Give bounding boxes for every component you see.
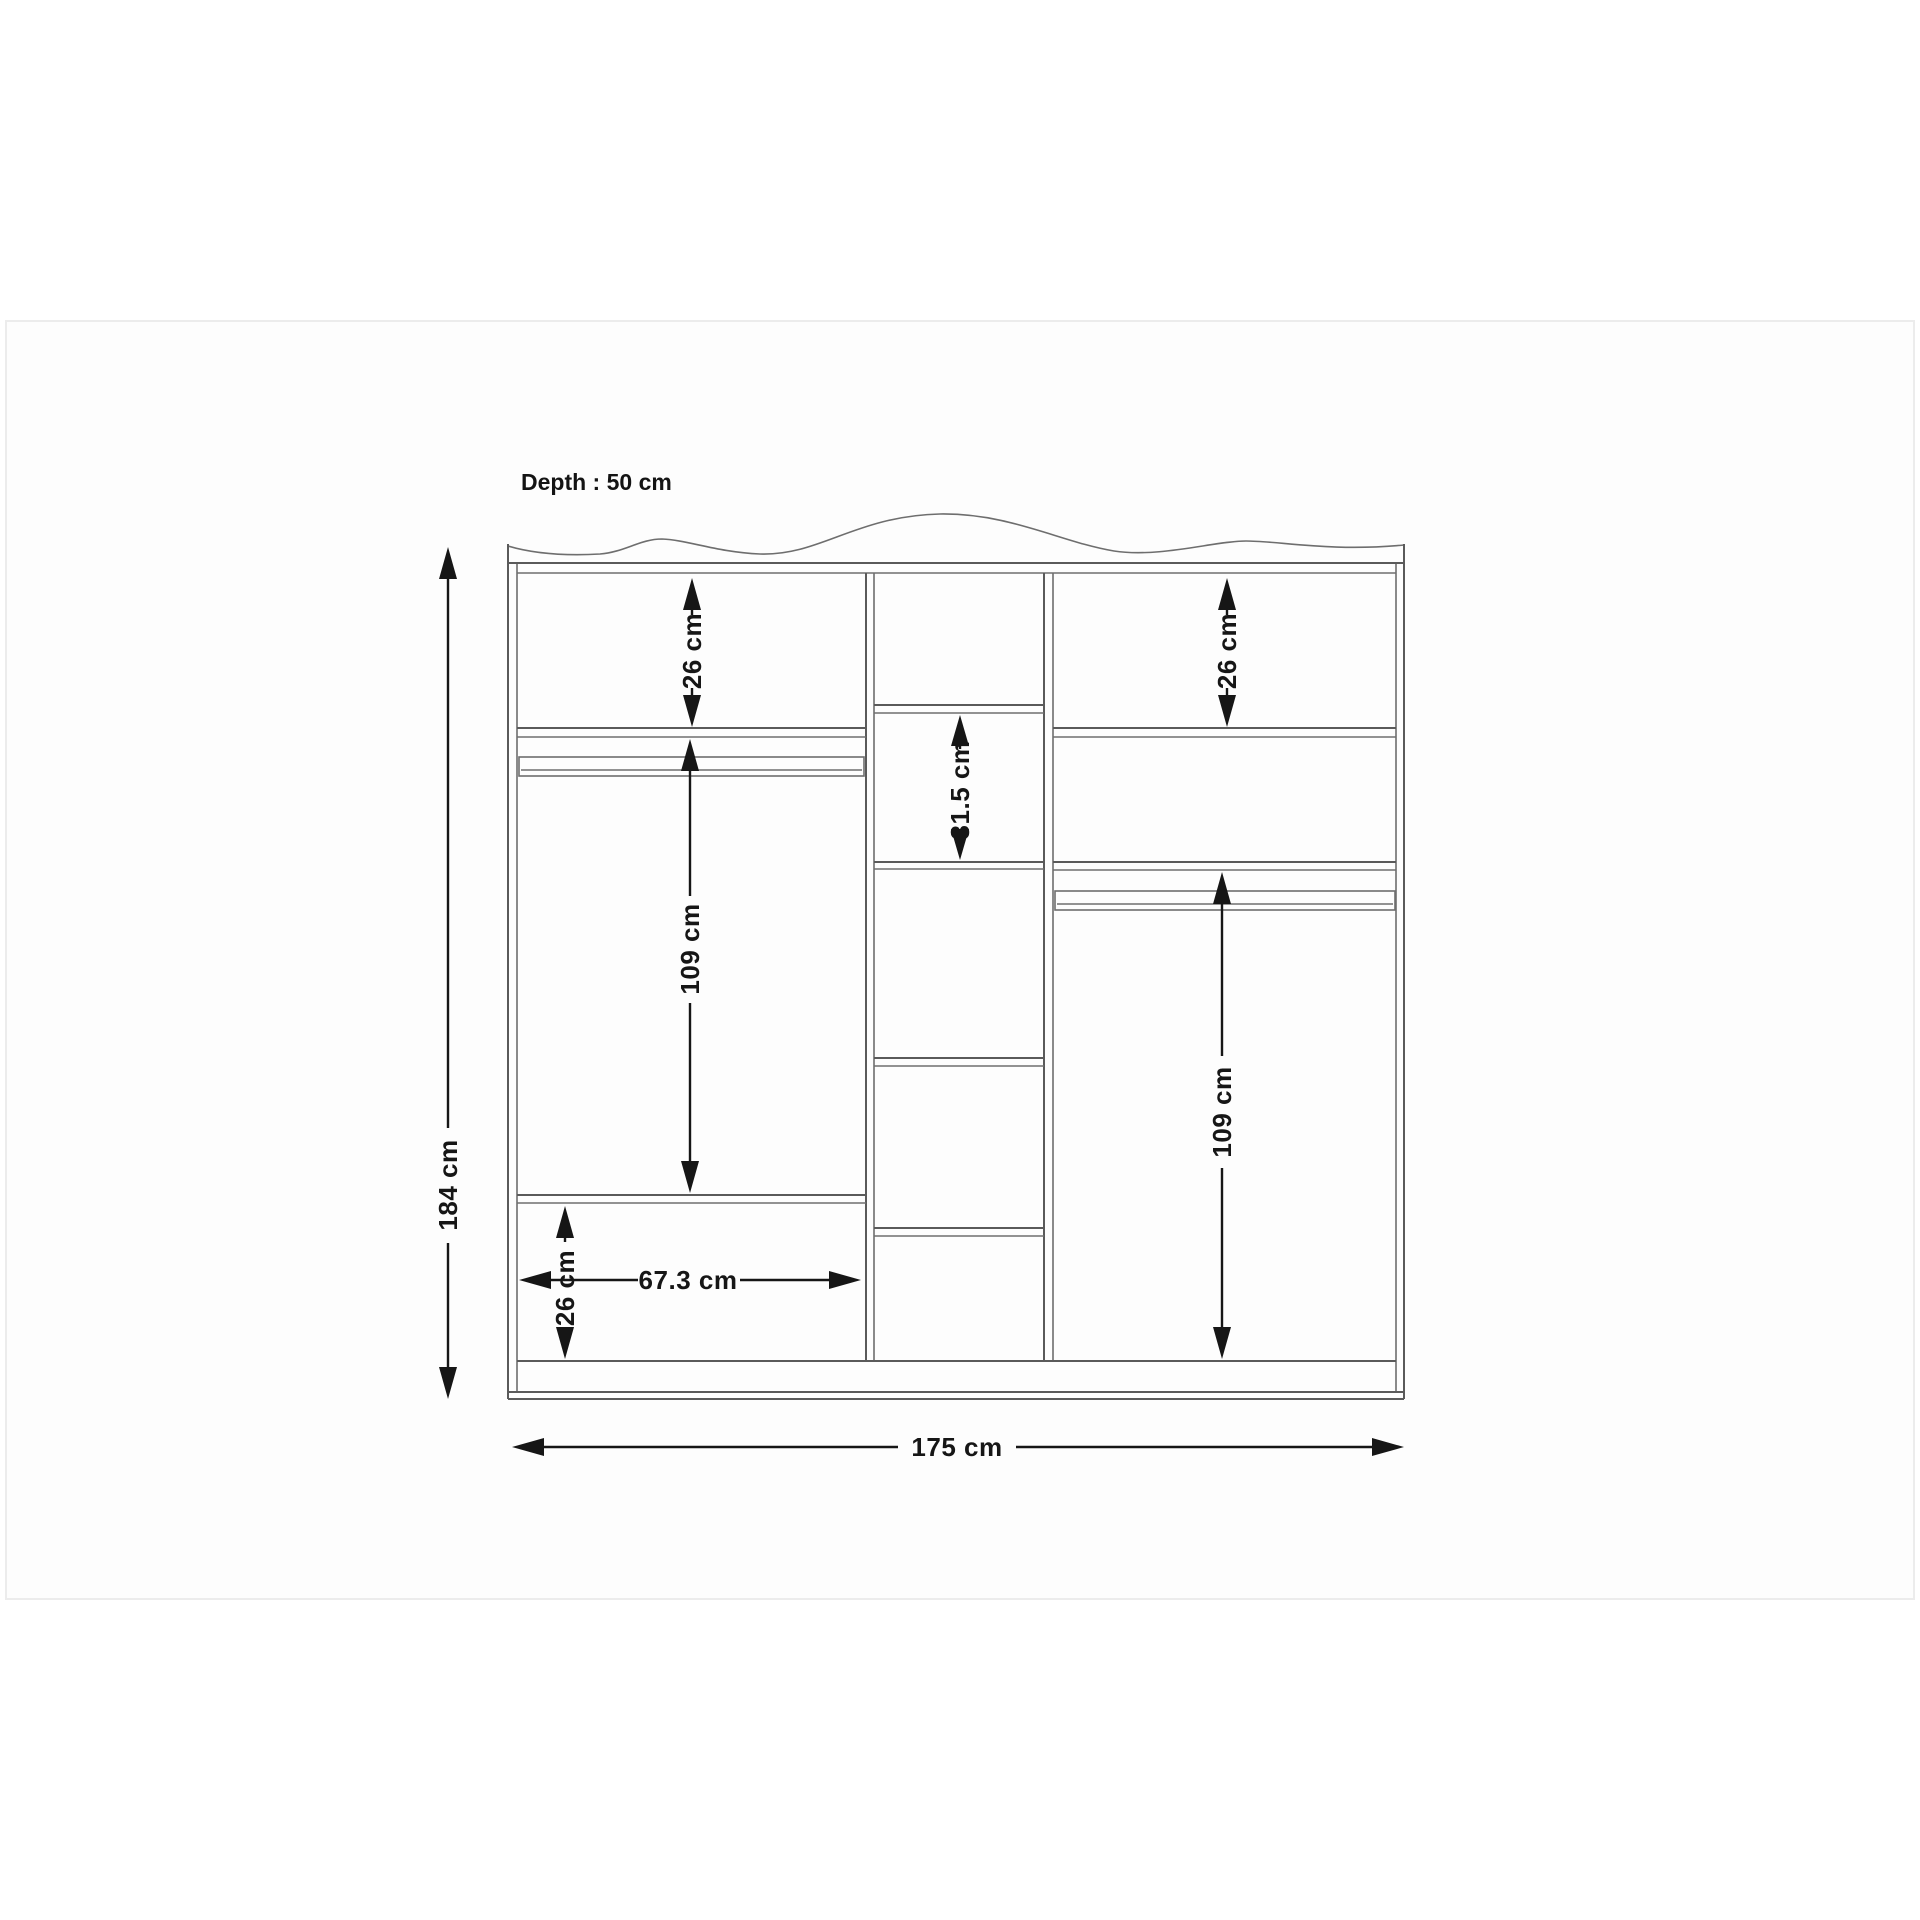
dimension-label-31-5cm: 31.5 cm xyxy=(945,741,975,840)
dimension-label-109cm-left: 109 cm xyxy=(675,903,705,994)
wardrobe-technical-drawing: 184 cm 175 cm 26 cm 26 cm 31.5 cm xyxy=(0,0,1920,1920)
dimension-label-184cm: 184 cm xyxy=(433,1139,463,1230)
dimension-label-26cm-left-bottom: 26 cm xyxy=(550,1250,580,1326)
dimension-label-26cm-right-top: 26 cm xyxy=(1212,613,1242,689)
dimension-label-109cm-right: 109 cm xyxy=(1207,1066,1237,1157)
screenshot-canvas: 184 cm 175 cm 26 cm 26 cm 31.5 cm xyxy=(0,0,1920,1920)
photo-frame xyxy=(6,321,1914,1599)
dimension-label-175cm: 175 cm xyxy=(911,1432,1002,1462)
dimension-label-67-3cm: 67.3 cm xyxy=(639,1265,738,1295)
depth-label: Depth : 50 cm xyxy=(521,469,672,495)
dimension-label-26cm-left-top: 26 cm xyxy=(677,613,707,689)
